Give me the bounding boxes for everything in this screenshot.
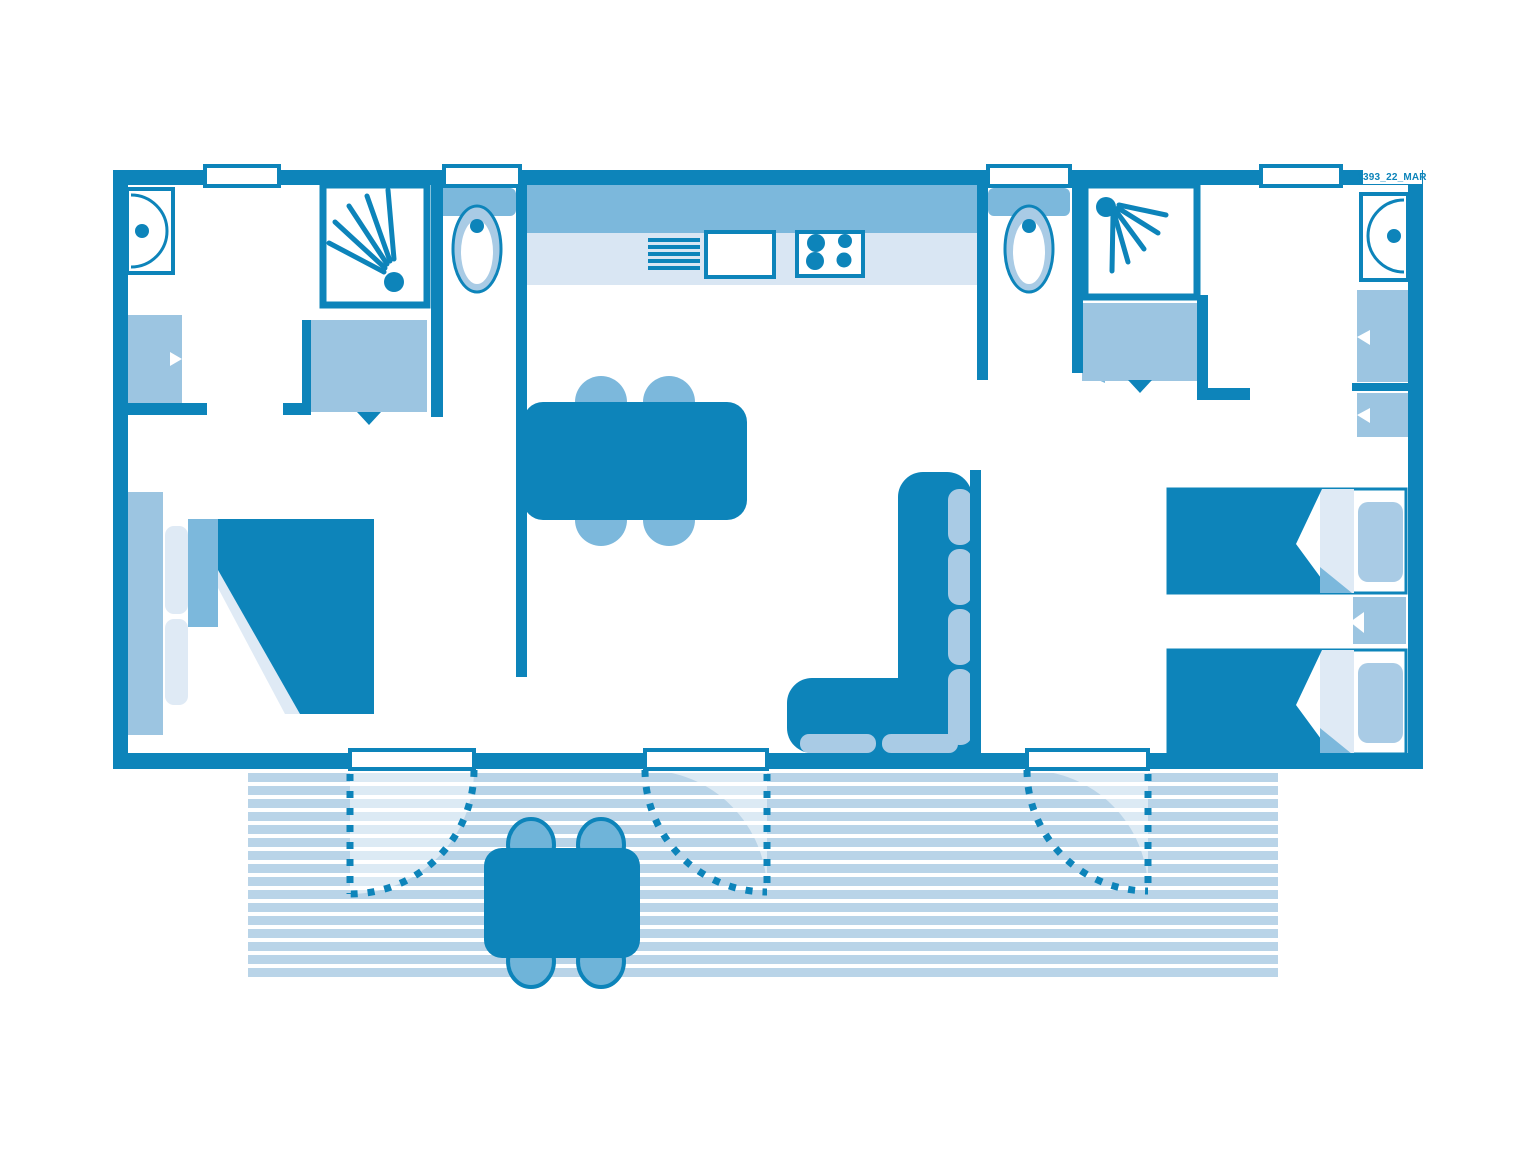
plan-reference-label: 1393_22_MAR [1357, 172, 1427, 183]
dining-table-icon [523, 402, 747, 520]
deck-board [248, 903, 1278, 912]
single-bed-icon [1168, 650, 1406, 754]
terrace-table-icon [484, 848, 640, 958]
wardrobe-marker [357, 412, 381, 425]
burner [807, 234, 825, 252]
wall-stub [1352, 383, 1408, 391]
bathroom-left [127, 185, 427, 425]
living-dining [523, 376, 972, 753]
window-icon [444, 166, 520, 186]
shower-head [1096, 197, 1116, 217]
wall-central [516, 185, 527, 677]
window-icon [1261, 166, 1341, 186]
twin-bedroom [1168, 489, 1406, 754]
shower-head [384, 272, 404, 292]
door-swing-zone [350, 770, 474, 894]
burner [838, 234, 852, 248]
wall-bath-right [1208, 388, 1250, 400]
wall-stub [302, 320, 311, 415]
kitchen [527, 185, 977, 285]
wall-kitchen-end [977, 185, 988, 380]
single-bed-icon [1168, 489, 1406, 593]
wall-bath-right [1197, 295, 1208, 400]
wc-right [988, 188, 1070, 292]
deck-board [248, 955, 1278, 964]
pillow-icon [165, 619, 188, 705]
wall-wc-left [431, 185, 443, 417]
toilet-flush [1022, 219, 1036, 233]
washbasin-drain [1387, 229, 1401, 243]
sink-icon [706, 232, 774, 277]
deck-board [248, 929, 1278, 938]
floor-plan-drawing: 1393_22_MAR [0, 0, 1536, 1152]
bed-sheet [188, 519, 218, 627]
bed-headboard [127, 492, 163, 735]
terrace-door [350, 750, 474, 769]
wardrobe-icon [311, 320, 427, 412]
floor-plan: 1393_22_MAR [0, 0, 1536, 1152]
pillow-icon [165, 526, 188, 614]
window-icon [988, 166, 1070, 186]
stove-icon [797, 232, 863, 276]
kitchen-cabinets [527, 185, 977, 233]
wardrobe-marker [1128, 380, 1152, 393]
deck-board [248, 942, 1278, 951]
wall-top [113, 170, 1423, 185]
terrace [248, 770, 1278, 987]
wall-bath-divider [113, 403, 207, 415]
burner [806, 252, 824, 270]
wall-wc-right [1072, 185, 1083, 373]
wall-right [1408, 170, 1423, 769]
burner [837, 253, 852, 268]
window-icon [205, 166, 279, 186]
terrace-door [1027, 750, 1148, 769]
terrace-door [645, 750, 767, 769]
pillow-icon [1358, 663, 1403, 743]
wall-sofa-back [970, 470, 981, 753]
wc-left [437, 188, 516, 292]
washbasin-drain [135, 224, 149, 238]
master-bedroom [127, 492, 374, 735]
wardrobe-icon [1082, 303, 1200, 381]
deck-board [248, 968, 1278, 977]
wall-left [113, 170, 128, 769]
pillow-icon [1358, 502, 1403, 582]
toilet-flush [470, 219, 484, 233]
deck-board [248, 916, 1278, 925]
